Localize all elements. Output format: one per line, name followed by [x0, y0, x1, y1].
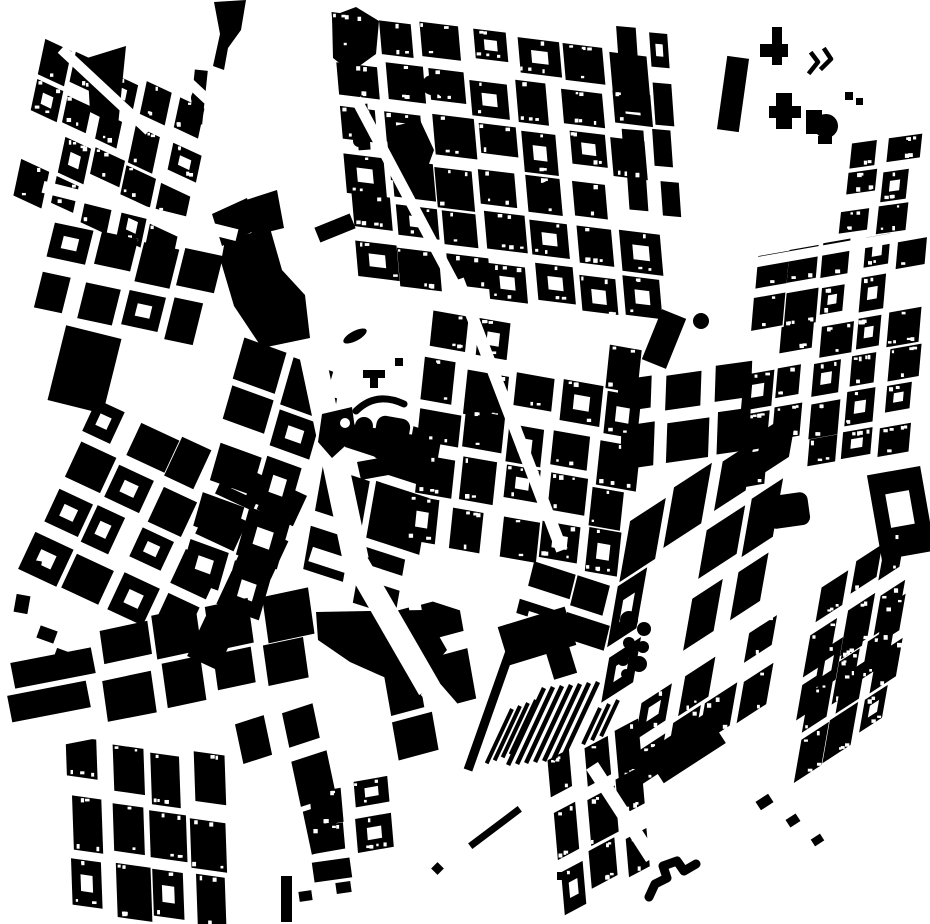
- building-footprint: [437, 83, 451, 97]
- building-gap: [522, 82, 527, 86]
- building-gap: [356, 220, 360, 224]
- city-block: [176, 248, 223, 293]
- building-gap: [157, 910, 160, 914]
- building-gap: [353, 188, 356, 191]
- building-gap: [633, 803, 637, 808]
- courtyard: [864, 326, 874, 339]
- courtyard: [367, 826, 382, 841]
- building-gap: [828, 289, 831, 293]
- city-block: [194, 751, 227, 805]
- slab-building: [642, 309, 686, 369]
- courtyard: [581, 142, 596, 156]
- building-gap: [897, 205, 899, 207]
- city-block: [332, 12, 369, 52]
- building-gap: [567, 871, 570, 874]
- building-gap: [778, 392, 783, 395]
- courtyard: [573, 394, 590, 412]
- building-gap: [836, 604, 839, 607]
- building-gap: [411, 230, 414, 233]
- city-block: [596, 440, 641, 491]
- building-gap: [841, 662, 845, 665]
- building-gap: [901, 373, 904, 377]
- building-footprint: [36, 625, 57, 643]
- building-gap: [826, 457, 830, 459]
- building-gap: [424, 283, 427, 286]
- courtyard: [820, 371, 832, 385]
- building-gap: [535, 118, 539, 121]
- building-gap: [808, 769, 813, 772]
- building-gap: [405, 115, 408, 118]
- leaf-island: [341, 325, 369, 346]
- city-block: [263, 637, 309, 686]
- courtyard: [357, 168, 374, 184]
- city-block: [233, 338, 287, 394]
- building-gap: [859, 173, 863, 176]
- building-gap: [37, 168, 40, 172]
- city-block: [794, 722, 829, 783]
- large-building-mass: [48, 325, 122, 414]
- building-gap: [488, 199, 490, 202]
- building-gap: [630, 309, 633, 312]
- building-gap: [877, 716, 881, 718]
- building-gap: [888, 341, 892, 343]
- warehouse-complex: [545, 642, 577, 680]
- building-gap: [363, 67, 367, 71]
- building-gap: [852, 671, 854, 675]
- building-gap: [911, 337, 915, 341]
- building-gap: [365, 158, 368, 160]
- building-gap: [80, 771, 84, 774]
- building-gap: [520, 247, 524, 249]
- building-gap: [440, 202, 444, 206]
- building-gap: [644, 748, 648, 751]
- building-gap: [134, 159, 137, 163]
- building-gap: [104, 153, 108, 157]
- city-block: [77, 282, 121, 325]
- building-footprint: [811, 834, 825, 847]
- building-gap: [836, 349, 839, 352]
- building-gap: [170, 854, 173, 857]
- building-gap: [58, 199, 62, 203]
- building-gap: [659, 691, 662, 696]
- city-block: [570, 575, 610, 616]
- city-block: [816, 570, 849, 622]
- building-gap: [431, 458, 434, 462]
- building-gap: [76, 899, 78, 902]
- building-gap: [693, 712, 697, 716]
- building-gap: [477, 52, 481, 55]
- building-gap: [869, 185, 872, 189]
- building-footprint: [786, 813, 801, 827]
- pier: [468, 806, 522, 849]
- building-gap: [868, 261, 872, 265]
- building-gap: [574, 382, 578, 386]
- building-gap: [435, 490, 438, 494]
- building-gap: [830, 647, 833, 651]
- courtyard: [632, 244, 650, 261]
- building-gap: [804, 739, 808, 741]
- building-gap: [405, 51, 409, 54]
- building-gap: [472, 495, 476, 497]
- building-gap: [535, 249, 538, 252]
- city-block: [661, 181, 682, 217]
- building-gap: [96, 847, 99, 851]
- building-gap: [864, 161, 867, 165]
- building-gap: [854, 357, 858, 359]
- building-gap: [620, 117, 624, 120]
- building-gap: [846, 420, 849, 422]
- building-gap: [360, 243, 362, 247]
- building-gap: [887, 449, 891, 452]
- building-gap: [543, 178, 545, 182]
- building-gap: [605, 875, 610, 879]
- building-gap: [56, 89, 60, 93]
- building-gap: [484, 147, 486, 152]
- building-gap: [476, 443, 480, 445]
- building-gap: [890, 195, 894, 197]
- building-gap: [50, 73, 53, 76]
- building-gap: [866, 430, 869, 434]
- building-gap: [455, 151, 458, 154]
- city-block: [65, 442, 117, 494]
- building-gap: [521, 116, 524, 120]
- round-building: [617, 654, 629, 666]
- building-footprint: [769, 106, 801, 118]
- city-block: [876, 202, 909, 234]
- building-gap: [565, 784, 568, 788]
- building-gap: [556, 459, 558, 461]
- round-building: [637, 622, 651, 636]
- building-gap: [423, 252, 427, 255]
- building-gap: [857, 431, 859, 435]
- building-gap: [483, 31, 487, 34]
- building-gap: [901, 262, 905, 265]
- courtyard: [369, 253, 387, 268]
- building-gap: [209, 822, 213, 826]
- building-gap: [540, 135, 543, 138]
- building-gap: [412, 497, 416, 500]
- building-gap: [791, 276, 795, 279]
- building-gap: [618, 92, 621, 95]
- building-gap: [324, 819, 327, 823]
- building-gap: [147, 133, 150, 136]
- building-gap: [77, 844, 80, 849]
- courtyard: [499, 276, 515, 291]
- building-gap: [892, 226, 895, 230]
- building-gap: [465, 494, 469, 499]
- city-block: [164, 297, 203, 345]
- building-gap: [850, 648, 854, 652]
- courtyard: [867, 286, 878, 300]
- building-gap: [686, 706, 689, 710]
- city-block: [807, 435, 837, 467]
- building-footprint: [818, 136, 832, 144]
- city-block: [113, 803, 145, 855]
- building-gap: [516, 520, 520, 522]
- building-gap: [600, 259, 603, 262]
- building-gap: [360, 189, 363, 192]
- building-gap: [83, 147, 88, 152]
- building-gap: [755, 375, 758, 378]
- building-gap: [555, 267, 558, 271]
- building-gap: [506, 201, 509, 205]
- building-gap: [544, 552, 549, 556]
- building-gap: [593, 185, 597, 189]
- city-block: [420, 357, 455, 405]
- building-gap: [67, 118, 72, 122]
- city-block: [822, 702, 858, 763]
- courtyard: [415, 511, 429, 529]
- building-gap: [465, 172, 468, 176]
- building-gap: [901, 426, 904, 430]
- building-gap: [585, 257, 588, 262]
- building-gap: [108, 138, 112, 143]
- building-gap: [498, 214, 503, 217]
- building-gap: [756, 650, 759, 654]
- building-gap: [912, 347, 917, 350]
- building-gap: [587, 419, 591, 422]
- building-gap: [72, 185, 76, 188]
- building-gap: [856, 392, 858, 395]
- building-gap: [625, 171, 628, 176]
- building-gap: [409, 534, 413, 538]
- round-building: [631, 656, 647, 672]
- building-gap: [576, 92, 579, 94]
- building-gap: [864, 279, 868, 283]
- building-gap: [572, 478, 574, 480]
- building-gap: [855, 586, 858, 590]
- building-gap: [336, 825, 339, 829]
- building-gap: [753, 415, 757, 417]
- building-gap: [124, 189, 127, 192]
- city-block: [151, 606, 202, 659]
- building-gap: [508, 466, 512, 469]
- building-gap: [792, 406, 796, 409]
- building-gap: [638, 866, 641, 870]
- building-gap: [569, 462, 573, 466]
- building-gap: [890, 428, 894, 431]
- city-block: [38, 39, 72, 87]
- building-gap: [850, 212, 852, 214]
- building-gap: [873, 260, 876, 263]
- building-gap: [796, 405, 799, 408]
- building-gap: [559, 853, 563, 857]
- building-gap: [383, 842, 386, 846]
- city-block: [311, 822, 345, 854]
- building-gap: [178, 147, 181, 151]
- building-gap: [808, 318, 811, 321]
- building-gap: [619, 445, 621, 449]
- building-gap: [635, 173, 639, 178]
- building-gap: [847, 227, 851, 229]
- chain-building: [649, 861, 696, 897]
- city-block: [616, 26, 638, 66]
- building-gap: [476, 513, 480, 517]
- building-gap: [358, 17, 362, 21]
- building-gap: [115, 746, 119, 749]
- building-gap: [592, 746, 597, 748]
- building-footprint: [312, 857, 352, 882]
- city-block: [478, 169, 517, 208]
- building-footprint: [14, 594, 31, 614]
- building-gap: [587, 48, 592, 51]
- building-gap: [405, 95, 409, 99]
- building-gap: [122, 865, 125, 869]
- courtyard: [81, 874, 94, 892]
- city-block: [223, 385, 274, 433]
- building-gap: [805, 725, 808, 728]
- round-building: [620, 611, 638, 629]
- building-gap: [571, 527, 575, 531]
- city-block: [839, 208, 870, 234]
- building-footprint: [395, 358, 403, 366]
- building-gap: [478, 110, 481, 113]
- building-gap: [594, 160, 598, 164]
- city-block: [262, 587, 314, 643]
- building-gap: [864, 602, 867, 606]
- hook-building: [213, 0, 246, 70]
- building-gap: [429, 51, 433, 53]
- building-gap: [904, 425, 907, 428]
- building-gap: [853, 654, 857, 657]
- city-block: [653, 83, 675, 127]
- building-gap: [812, 635, 815, 638]
- building-gap: [643, 234, 646, 238]
- building-gap: [816, 690, 819, 693]
- building-gap: [870, 278, 873, 282]
- building-gap: [521, 468, 523, 471]
- building-gap: [480, 124, 484, 128]
- building-gap: [859, 431, 862, 435]
- building-gap: [368, 818, 370, 822]
- building-gap: [902, 312, 906, 315]
- building-gap: [459, 316, 463, 319]
- building-gap: [395, 24, 398, 29]
- city-block: [100, 621, 152, 664]
- building-gap: [542, 69, 544, 73]
- building-gap: [92, 901, 95, 903]
- city-block: [589, 487, 624, 531]
- building-gap: [529, 117, 533, 120]
- building-gap: [654, 723, 658, 727]
- building-gap: [591, 212, 594, 216]
- building-gap: [575, 119, 579, 123]
- city-block: [572, 181, 608, 220]
- building-gap: [591, 840, 594, 844]
- building-gap: [792, 321, 795, 324]
- building-gap: [85, 799, 90, 802]
- building-gap: [845, 743, 849, 746]
- building-gap: [97, 149, 100, 152]
- building-gap: [530, 402, 533, 406]
- building-gap: [611, 481, 615, 485]
- building-gap: [429, 436, 432, 439]
- building-gap: [349, 133, 352, 136]
- building-gap: [380, 223, 383, 226]
- building-gap: [880, 681, 884, 685]
- building-gap: [905, 154, 909, 158]
- building-gap: [441, 116, 445, 119]
- building-gap: [178, 855, 181, 858]
- building-gap: [859, 357, 862, 362]
- building-gap: [332, 826, 336, 828]
- courtyard: [531, 50, 549, 65]
- building-gap: [363, 91, 366, 96]
- courtyard: [484, 39, 498, 51]
- building-gap: [476, 412, 480, 415]
- building-gap: [618, 171, 621, 175]
- building-gap: [817, 731, 820, 735]
- building-gap: [503, 266, 507, 269]
- building-gap: [852, 432, 855, 435]
- building-gap: [554, 504, 557, 508]
- building-gap: [528, 67, 531, 70]
- building-gap: [630, 724, 633, 729]
- city-block: [430, 311, 469, 353]
- building-gap: [210, 755, 214, 759]
- building-gap: [91, 773, 94, 777]
- building-gap: [883, 429, 887, 432]
- building-gap: [872, 697, 875, 700]
- courtyard: [596, 543, 611, 561]
- building-gap: [356, 66, 360, 70]
- city-block: [622, 129, 646, 166]
- building-gap: [818, 459, 822, 461]
- building-gap: [593, 258, 597, 262]
- courtyard: [655, 44, 663, 57]
- courtyard: [547, 276, 563, 291]
- city-block: [846, 169, 877, 195]
- building-gap: [559, 475, 564, 480]
- building-gap: [868, 160, 872, 163]
- building-gap: [479, 83, 481, 86]
- building-gap: [494, 294, 497, 296]
- city-block: [751, 293, 785, 331]
- building-gap: [444, 439, 447, 442]
- building-gap: [893, 340, 896, 343]
- building-gap: [594, 121, 596, 125]
- building-gap: [76, 122, 78, 125]
- courtyard: [893, 392, 904, 403]
- building-gap: [886, 607, 891, 611]
- courtyard: [827, 294, 837, 305]
- city-block: [715, 361, 753, 402]
- building-gap: [856, 380, 860, 384]
- building-gap: [132, 193, 136, 197]
- building-gap: [897, 643, 902, 648]
- building-gap: [599, 479, 603, 483]
- building-gap: [648, 775, 651, 778]
- building-footprint: [845, 92, 853, 100]
- building-gap: [895, 535, 898, 539]
- building-gap: [597, 567, 600, 571]
- building-gap: [38, 81, 42, 84]
- building-gap: [694, 701, 696, 703]
- building-gap: [129, 168, 133, 170]
- courtyard: [635, 289, 651, 305]
- city-block: [113, 745, 145, 796]
- building-gap: [592, 799, 596, 803]
- building-gap: [898, 600, 902, 602]
- building-gap: [354, 783, 357, 786]
- slab-building: [717, 56, 749, 132]
- building-gap: [648, 268, 651, 271]
- building-gap: [35, 106, 40, 109]
- building-gap: [863, 673, 866, 676]
- city-block: [665, 371, 701, 411]
- building-gap: [82, 81, 85, 85]
- building-gap: [882, 596, 886, 599]
